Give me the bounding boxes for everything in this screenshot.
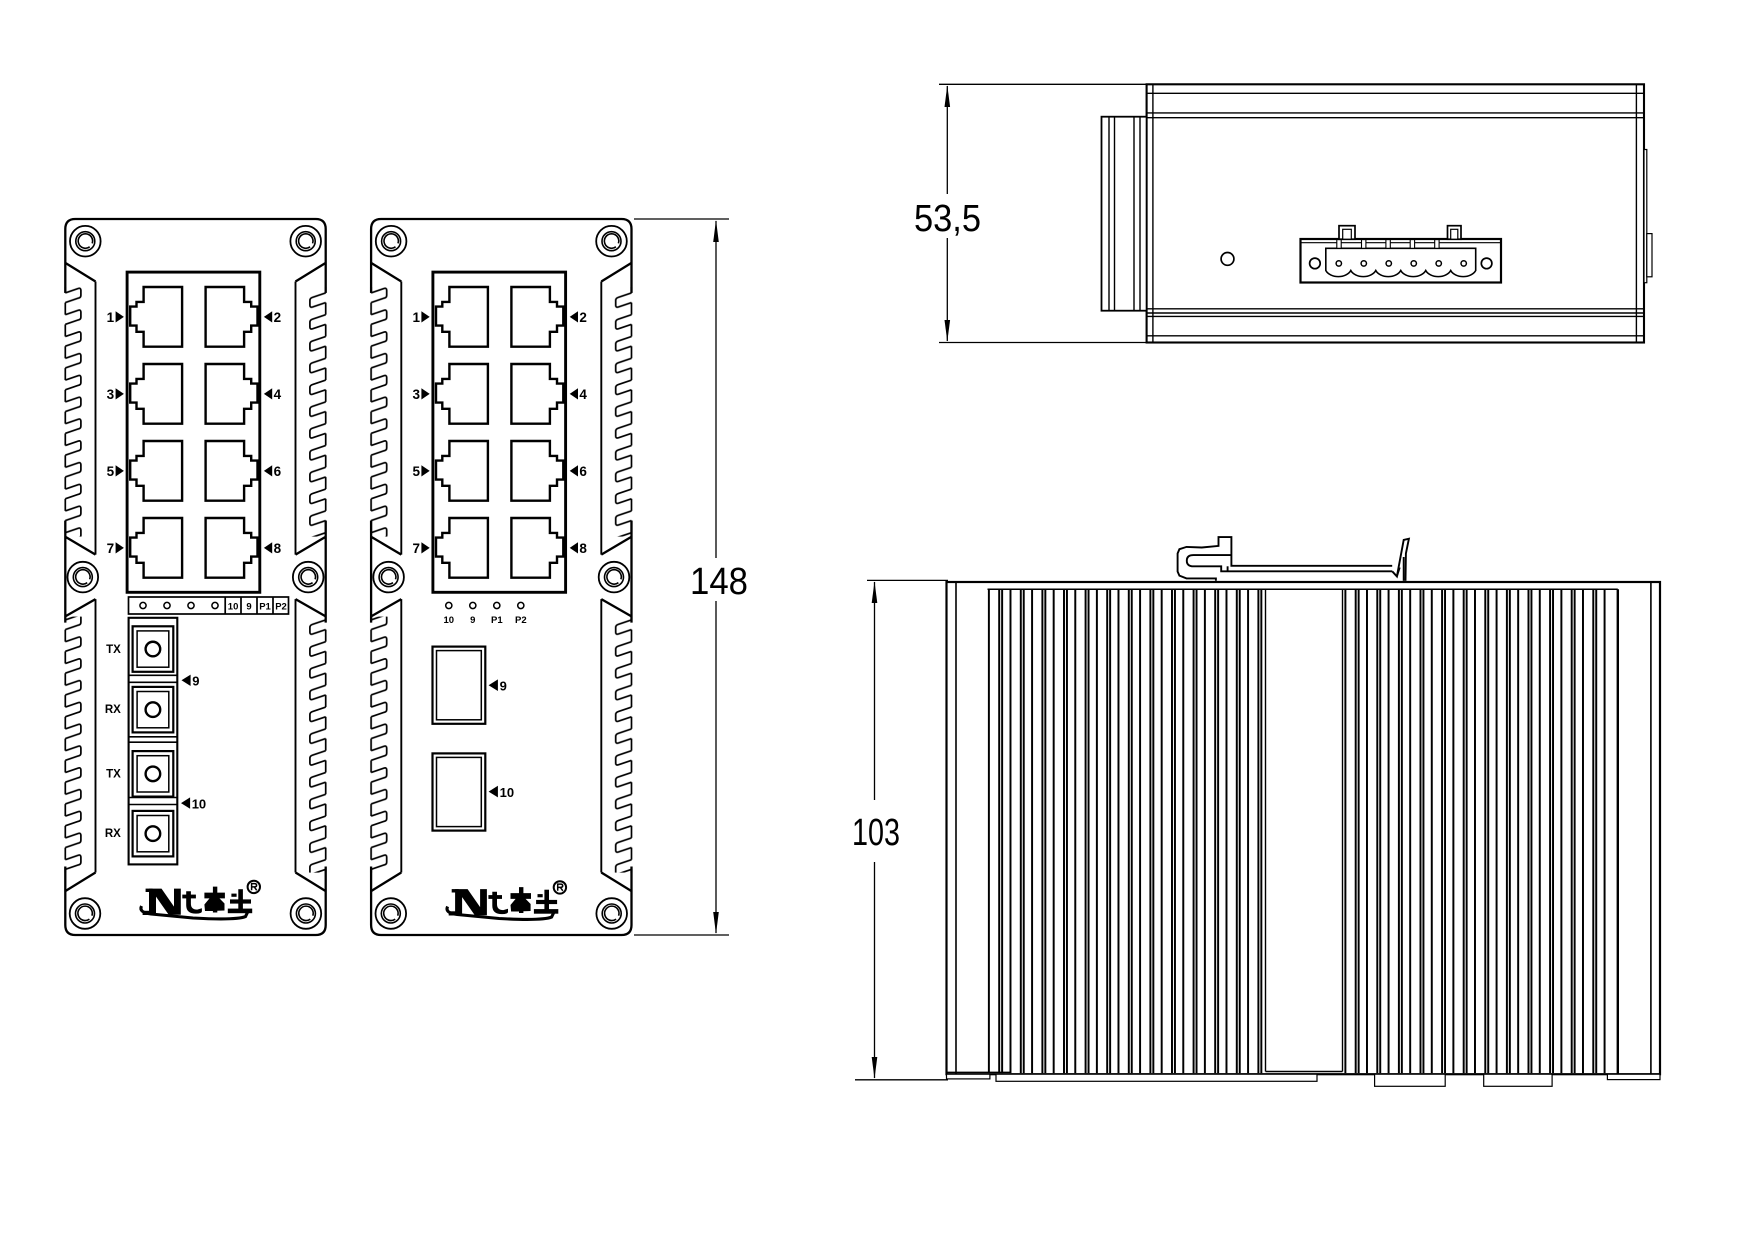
svg-text:10: 10 xyxy=(444,615,455,626)
svg-text:P1: P1 xyxy=(491,615,503,626)
svg-text:103: 103 xyxy=(852,812,900,854)
svg-text:9: 9 xyxy=(246,601,251,612)
svg-text:TX: TX xyxy=(106,644,121,656)
svg-text:10: 10 xyxy=(228,601,239,612)
svg-text:10: 10 xyxy=(500,785,514,800)
svg-text:P1: P1 xyxy=(259,601,271,612)
svg-text:TX: TX xyxy=(106,768,121,780)
svg-text:148: 148 xyxy=(690,561,748,603)
svg-text:RX: RX xyxy=(105,828,121,840)
svg-text:9: 9 xyxy=(192,674,199,689)
svg-text:P2: P2 xyxy=(275,601,287,612)
svg-text:P2: P2 xyxy=(515,615,527,626)
svg-text:9: 9 xyxy=(470,615,475,626)
svg-text:10: 10 xyxy=(192,796,206,811)
svg-text:53,5: 53,5 xyxy=(914,198,981,240)
svg-text:9: 9 xyxy=(500,679,507,694)
svg-text:RX: RX xyxy=(105,704,121,716)
